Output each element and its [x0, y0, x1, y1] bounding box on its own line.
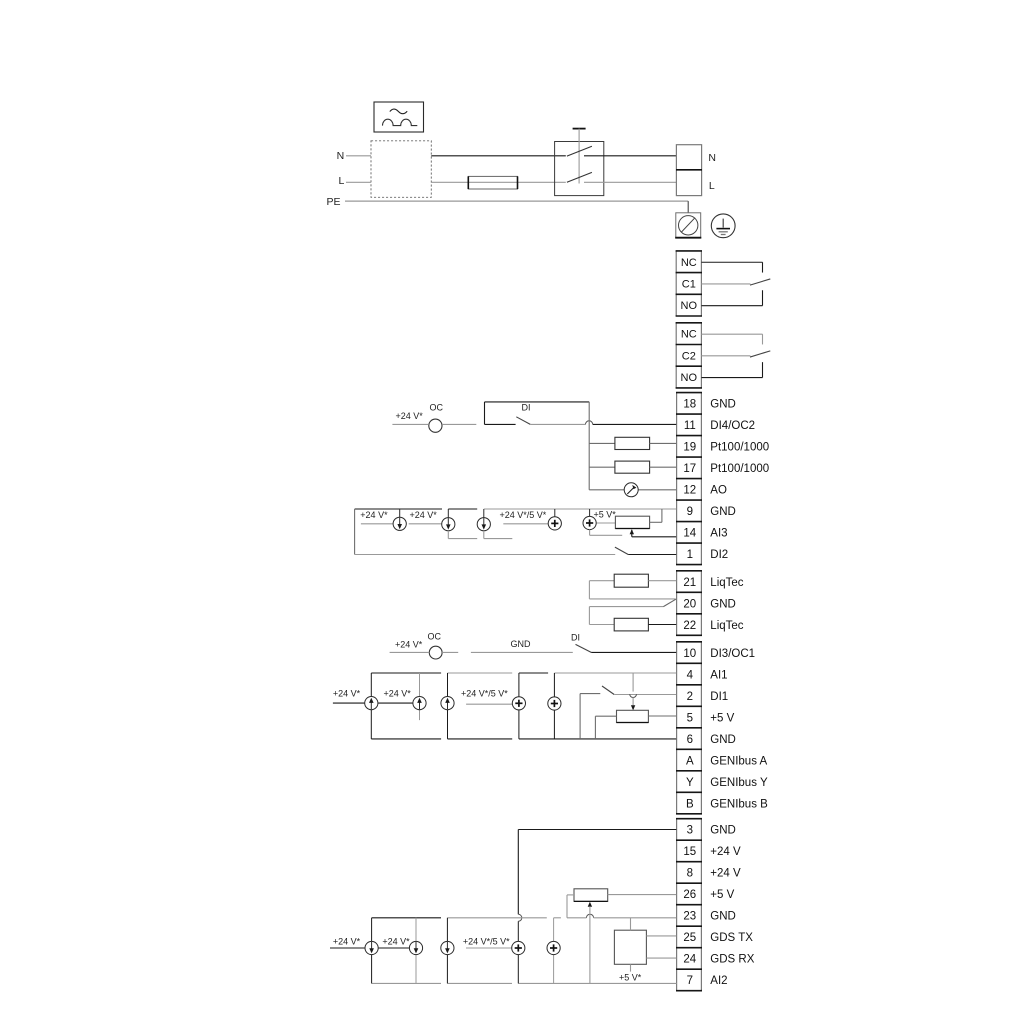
svg-text:AI2: AI2 [710, 975, 727, 987]
svg-text:12: 12 [683, 485, 696, 497]
svg-text:GND: GND [710, 506, 736, 518]
svg-text:GND: GND [710, 399, 736, 411]
svg-text:GND: GND [710, 734, 736, 746]
svg-text:DI2: DI2 [710, 549, 728, 561]
svg-text:AI1: AI1 [710, 669, 727, 681]
svg-text:A: A [686, 755, 694, 767]
svg-text:22: 22 [683, 620, 696, 632]
svg-text:+24 V*/5 V*: +24 V*/5 V* [463, 937, 510, 947]
svg-text:Y: Y [686, 777, 694, 789]
svg-text:GND: GND [710, 598, 736, 610]
svg-text:GENIbus Y: GENIbus Y [710, 777, 768, 789]
svg-text:+24 V*: +24 V* [360, 510, 388, 520]
svg-text:N: N [708, 152, 716, 164]
svg-text:DI4/OC2: DI4/OC2 [710, 420, 755, 432]
svg-text:+24 V*: +24 V* [382, 937, 410, 947]
svg-text:17: 17 [683, 463, 696, 475]
svg-text:18: 18 [683, 399, 696, 411]
svg-text:21: 21 [683, 577, 696, 589]
svg-text:+5 V*: +5 V* [594, 510, 617, 520]
svg-text:C2: C2 [682, 350, 696, 362]
svg-text:+24 V*: +24 V* [396, 411, 424, 421]
svg-text:NC: NC [681, 329, 697, 341]
svg-text:15: 15 [683, 846, 696, 858]
svg-text:DI1: DI1 [710, 691, 728, 703]
svg-text:11: 11 [684, 420, 696, 432]
svg-text:Pt100/1000: Pt100/1000 [710, 463, 769, 475]
svg-text:GND: GND [511, 639, 532, 649]
svg-text:2: 2 [687, 691, 693, 703]
svg-text:6: 6 [687, 734, 693, 746]
svg-text:+24 V*/5 V*: +24 V*/5 V* [461, 689, 508, 699]
svg-text:LiqTec: LiqTec [710, 577, 743, 589]
svg-text:+24 V*: +24 V* [333, 689, 361, 699]
svg-text:GND: GND [710, 911, 736, 923]
svg-text:GENIbus B: GENIbus B [710, 798, 768, 810]
svg-text:4: 4 [687, 669, 694, 681]
svg-text:DI3/OC1: DI3/OC1 [710, 648, 755, 660]
svg-text:+24 V: +24 V [710, 846, 741, 858]
svg-text:OC: OC [428, 632, 442, 642]
svg-text:DI: DI [522, 403, 531, 413]
svg-text:+5 V*: +5 V* [619, 973, 642, 983]
svg-text:+24 V*: +24 V* [333, 937, 361, 947]
svg-text:24: 24 [683, 954, 696, 966]
svg-text:GENIbus A: GENIbus A [710, 755, 767, 767]
svg-text:OC: OC [430, 403, 444, 413]
svg-text:1: 1 [687, 549, 693, 561]
svg-text:LiqTec: LiqTec [710, 620, 743, 632]
svg-text:NO: NO [681, 372, 698, 384]
svg-text:+5 V: +5 V [710, 712, 734, 724]
svg-text:19: 19 [683, 442, 696, 454]
svg-text:+24 V*: +24 V* [395, 640, 423, 650]
svg-text:8: 8 [687, 868, 693, 880]
svg-text:B: B [686, 798, 694, 810]
svg-text:L: L [339, 175, 345, 187]
svg-text:+5 V: +5 V [710, 889, 734, 901]
svg-text:25: 25 [683, 932, 696, 944]
svg-text:10: 10 [683, 648, 696, 660]
svg-text:N: N [337, 150, 345, 162]
svg-text:+24 V*: +24 V* [384, 689, 412, 699]
svg-text:7: 7 [687, 975, 693, 987]
svg-text:DI: DI [571, 633, 580, 643]
svg-text:GDS RX: GDS RX [710, 954, 754, 966]
svg-text:NO: NO [681, 300, 698, 312]
svg-text:C1: C1 [682, 278, 696, 290]
svg-text:GDS TX: GDS TX [710, 932, 753, 944]
svg-text:GND: GND [710, 825, 736, 837]
svg-text:L: L [709, 180, 715, 192]
svg-text:3: 3 [687, 825, 693, 837]
svg-text:26: 26 [683, 889, 696, 901]
svg-text:Pt100/1000: Pt100/1000 [710, 442, 769, 454]
svg-text:23: 23 [683, 911, 696, 923]
svg-text:9: 9 [687, 506, 693, 518]
svg-text:+24 V: +24 V [710, 868, 741, 880]
svg-text:14: 14 [683, 528, 696, 540]
svg-text:PE: PE [326, 196, 340, 208]
svg-text:AO: AO [710, 485, 727, 497]
svg-text:NC: NC [681, 257, 697, 269]
svg-text:+24 V*: +24 V* [410, 510, 438, 520]
svg-text:AI3: AI3 [710, 528, 727, 540]
svg-text:5: 5 [687, 712, 693, 724]
svg-text:+24 V*/5 V*: +24 V*/5 V* [500, 510, 547, 520]
svg-text:20: 20 [683, 598, 696, 610]
